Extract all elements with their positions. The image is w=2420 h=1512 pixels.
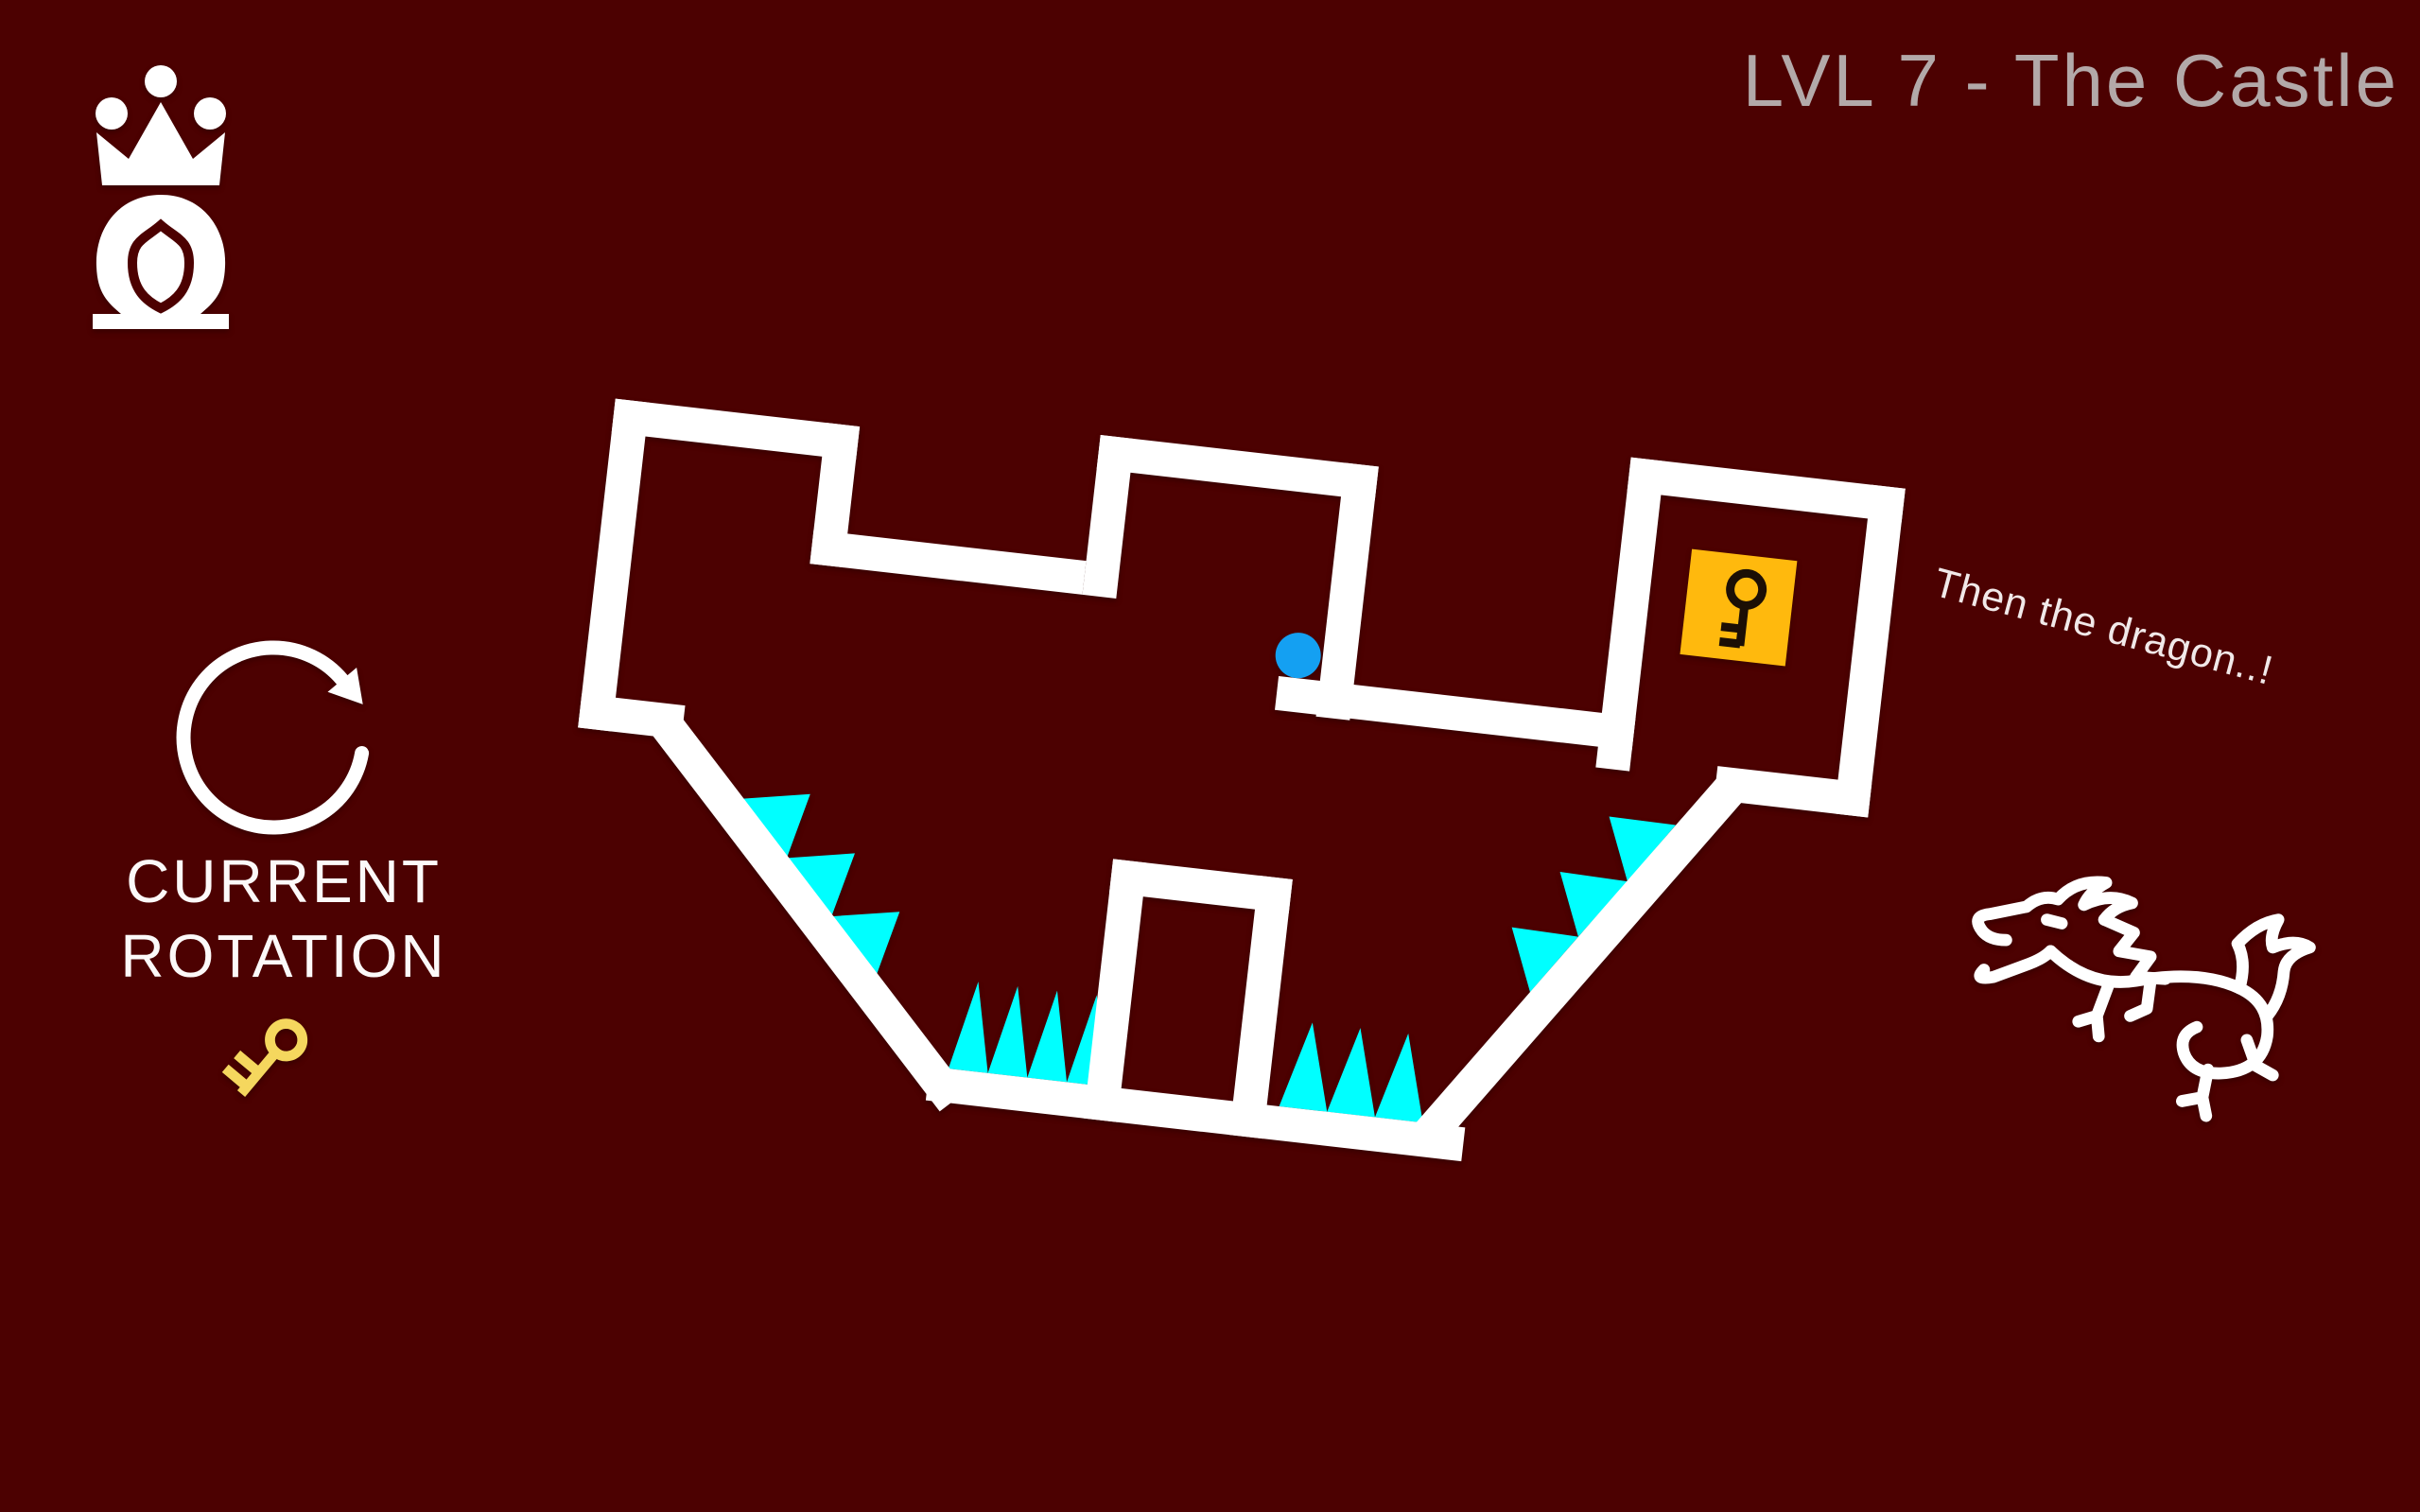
dragon-tail [2237,920,2309,1017]
spike [1327,1025,1384,1117]
gold-key-icon [213,1005,324,1117]
dragon-eye [2046,920,2062,924]
castle-wall [1275,676,1636,751]
current-rotation-line1: CURRENT [38,844,530,919]
castle-wall [1595,458,1664,772]
dragon-mane [2104,920,2166,980]
castle-wall [810,530,1086,595]
castle-wall-diagonal [615,713,1005,1115]
castle-wall [1097,435,1379,500]
castle-maze [539,342,1905,1212]
dragon-icon [1969,859,2340,1164]
rotate-arc [183,648,362,827]
crown-ball-right [194,97,226,130]
level-title: LVL 7 - The Castle [1743,38,2399,124]
castle-wall [612,399,860,461]
spike [949,980,998,1073]
spike [1027,988,1076,1082]
crown-ball-center [145,65,177,97]
spike [1375,1031,1433,1122]
crown-ball-left [96,97,128,130]
dragon-jaw [1980,951,2051,978]
castle-wall [1084,859,1147,1121]
current-rotation-line2: ROTATION [38,919,530,994]
current-rotation-label: CURRENT ROTATION [38,844,530,994]
dragon-front-leg [2079,986,2108,1036]
castle-wall [578,399,649,732]
monarch-icon [83,45,238,329]
castle-wall-diagonal [1403,740,1751,1189]
rotate-clockwise-icon [169,634,377,842]
dragon-body [2050,951,2267,1073]
dragon-snout [1978,907,2027,940]
castle-wall [1628,458,1906,523]
spike [1280,1020,1337,1112]
spike [988,983,1037,1077]
dragon-rear-leg [2182,1069,2207,1116]
player-ball [1273,631,1323,681]
castle-wall [1834,485,1905,818]
dragon-horns [2027,882,2133,920]
